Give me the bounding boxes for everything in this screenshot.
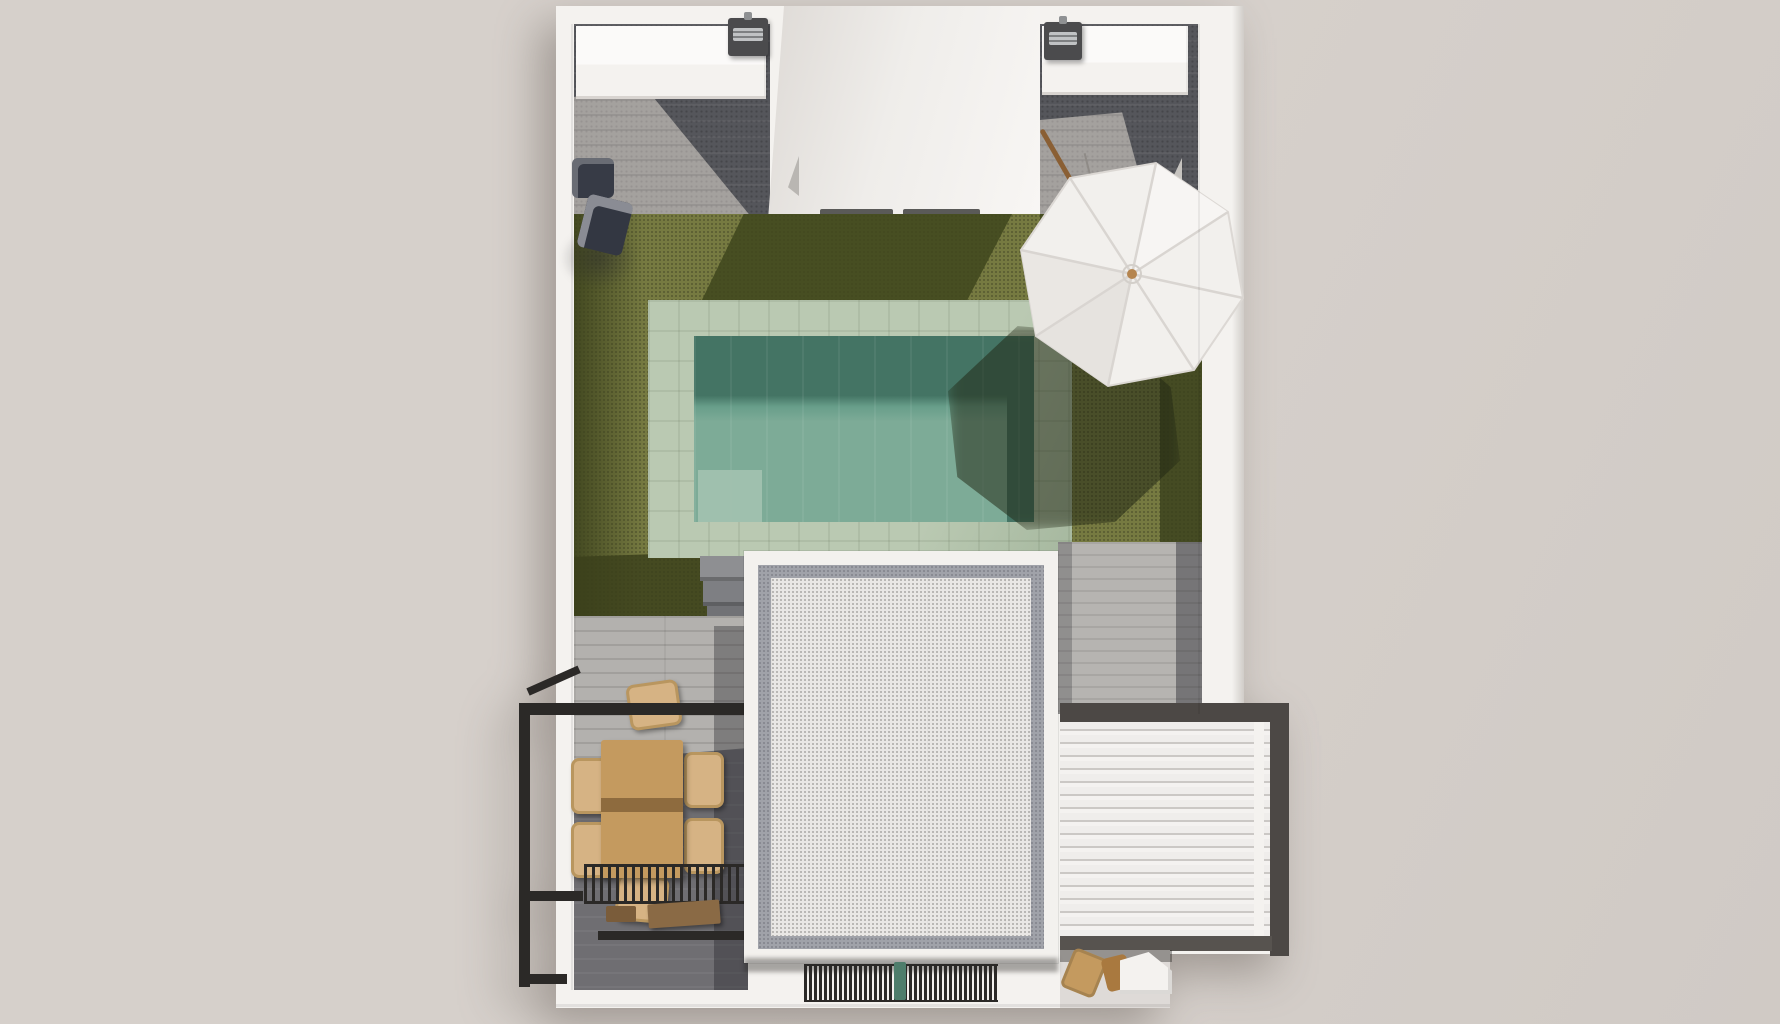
- drain-pipe: [894, 962, 906, 1000]
- louver-frame-bottom: [1060, 936, 1272, 951]
- parasol-hub: [1127, 269, 1137, 279]
- roof-gravel-field: [771, 578, 1031, 936]
- pool-step: [698, 470, 762, 522]
- pergola-beam-left: [519, 703, 530, 987]
- pergola-beam-stub: [519, 974, 567, 984]
- building-roof: [744, 551, 1058, 963]
- slatted-grate-left: [584, 864, 746, 904]
- dining-chair: [684, 752, 724, 808]
- right-wall-inner-edge: [1198, 24, 1200, 714]
- stair-step-2: [703, 581, 748, 606]
- bbq-grill-right-icon: [1044, 22, 1082, 60]
- property: [0, 0, 1780, 1024]
- louver-frame-top: [1060, 703, 1289, 723]
- parasol-umbrella: [1014, 152, 1254, 396]
- stair-step-1: [700, 556, 748, 581]
- louver-slats: [1060, 722, 1270, 938]
- stair-core-block: [768, 6, 1040, 220]
- deck-left-shadow: [1058, 542, 1072, 714]
- shadow-stair-core: [700, 214, 1012, 304]
- pergola-beam-mid: [521, 891, 583, 901]
- bottom-wall-edge: [556, 1004, 1170, 1007]
- dining-table: [601, 740, 683, 878]
- pergola-beam-low: [598, 931, 748, 940]
- render-canvas: [0, 0, 1780, 1024]
- louver-frame-right: [1270, 710, 1289, 956]
- wood-bench: [647, 900, 720, 929]
- bbq-grill-left-icon: [728, 18, 768, 56]
- louver-edge-highlight: [1254, 722, 1264, 938]
- pergola-beam-top: [519, 703, 749, 715]
- wall-shower-head: [572, 158, 614, 198]
- wood-plank: [606, 906, 636, 922]
